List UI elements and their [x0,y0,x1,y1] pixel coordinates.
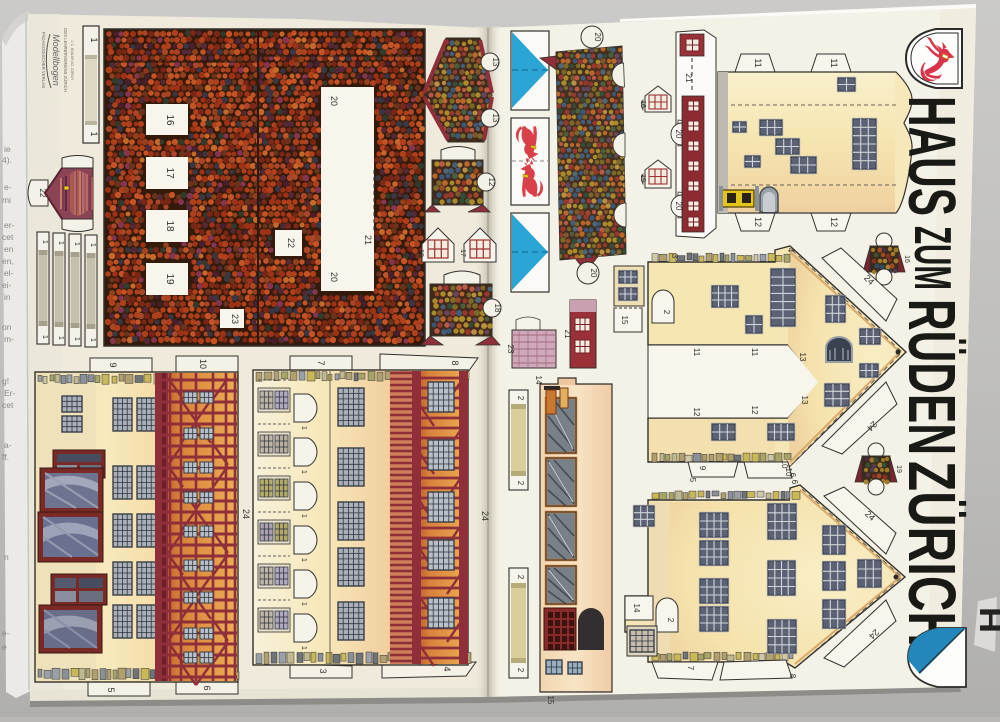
svg-text:mi: mi [2,195,11,205]
svg-text:1: 1 [41,240,48,244]
svg-text:18: 18 [493,304,502,313]
svg-text:20: 20 [329,272,339,282]
svg-text:5: 5 [688,478,697,483]
svg-text:2: 2 [516,668,525,673]
svg-text:1: 1 [57,241,64,245]
svg-text:1: 1 [300,426,307,430]
svg-text:17: 17 [164,167,175,179]
svg-text:J. C. MÜLLER AG. ZÜRICH: J. C. MÜLLER AG. ZÜRICH [70,40,74,80]
svg-text:20: 20 [593,33,602,42]
svg-text:ZUM: ZUM [903,226,961,290]
svg-text:PÄDAGOGISCHER VERLAG: PÄDAGOGISCHER VERLAG [41,32,46,89]
svg-text:22: 22 [286,238,296,248]
svg-text:1: 1 [300,602,307,606]
svg-text:13: 13 [800,396,809,405]
svg-text:1: 1 [300,558,307,562]
svg-text:14: 14 [534,376,543,385]
svg-text:8: 8 [788,674,797,679]
svg-text:cet: cet [2,232,14,242]
svg-text:1: 1 [73,337,80,341]
svg-text:10: 10 [198,359,208,369]
svg-text:1: 1 [41,335,48,339]
svg-text:1: 1 [89,338,96,342]
svg-text:ei-: ei- [2,280,12,290]
svg-text:el-: el- [4,268,14,278]
svg-text:RÜDEN: RÜDEN [894,299,969,455]
svg-text:20: 20 [674,202,683,211]
svg-text:18: 18 [417,249,424,257]
svg-text:m-: m- [4,334,14,344]
svg-text:3: 3 [670,254,679,259]
svg-text:15: 15 [546,696,555,705]
svg-text:2: 2 [516,575,525,580]
svg-text:19: 19 [639,174,646,182]
svg-text:1: 1 [300,514,307,518]
svg-text:13: 13 [491,58,500,67]
svg-text:7: 7 [316,360,326,365]
svg-text:en: en [4,244,14,254]
svg-text:20: 20 [329,96,339,106]
svg-text:16: 16 [164,114,175,126]
svg-text:11: 11 [753,58,763,67]
svg-text:ie: ie [4,144,11,154]
svg-text:21: 21 [563,330,572,339]
svg-text:cet: cet [2,400,14,410]
svg-text:15: 15 [620,316,629,325]
svg-text:20: 20 [674,130,683,139]
svg-text:e-: e- [2,628,10,638]
svg-text:6: 6 [202,685,212,690]
svg-text:18: 18 [164,220,175,232]
svg-text:5: 5 [106,687,116,692]
svg-text:24: 24 [480,511,490,521]
svg-text:13: 13 [798,353,807,362]
svg-text:HAUS: HAUS [894,96,969,216]
svg-text:n: n [4,552,9,562]
svg-text:a-: a- [4,440,12,450]
svg-text:23: 23 [506,345,515,354]
svg-text:9: 9 [698,466,707,471]
svg-text:Modellbogen: Modellbogen [51,34,61,86]
svg-text:ff.: ff. [2,452,9,462]
svg-text:23: 23 [230,314,240,324]
svg-text:12: 12 [829,217,839,227]
svg-text:1: 1 [89,37,99,42]
svg-text:1: 1 [57,336,64,340]
svg-text:DES LEHRERVEREINS ZÜRICH: DES LEHRERVEREINS ZÜRICH [63,28,68,92]
svg-text:21: 21 [684,74,693,83]
svg-text:Er-: Er- [4,388,16,398]
svg-text:2: 2 [662,310,671,315]
svg-text:er-: er- [4,220,15,230]
svg-text:1: 1 [300,470,307,474]
svg-text:e: e [2,642,7,652]
svg-text:10: 10 [784,468,793,477]
svg-text:1: 1 [89,131,99,136]
svg-text:2: 2 [516,396,525,401]
svg-text:1: 1 [73,242,80,246]
svg-text:2: 2 [516,481,525,486]
svg-text:g!: g! [2,376,9,386]
svg-text:12: 12 [750,406,759,415]
svg-text:14: 14 [632,604,641,613]
svg-text:3: 3 [318,668,328,673]
svg-text:1: 1 [300,646,307,650]
svg-text:H: H [973,607,1000,633]
svg-text:e-: e- [4,182,12,192]
svg-text:7: 7 [686,666,695,671]
svg-text:11: 11 [750,348,759,357]
svg-text:13: 13 [491,114,500,123]
svg-text:1: 1 [89,243,96,247]
svg-text:19: 19 [164,273,175,285]
svg-text:24: 24 [241,509,251,519]
svg-text:9: 9 [108,362,118,367]
svg-text:12: 12 [692,408,701,417]
svg-text:11: 11 [692,348,701,357]
svg-text:2: 2 [666,618,675,623]
svg-text:4: 4 [786,248,795,253]
svg-text:12: 12 [487,178,496,187]
svg-text:on: on [2,322,12,332]
svg-text:4: 4 [442,666,452,671]
svg-text:16: 16 [639,100,646,108]
svg-text:12: 12 [753,217,763,227]
svg-text:11: 11 [829,58,839,67]
svg-text:17: 17 [459,249,466,257]
svg-text:20: 20 [589,269,598,278]
svg-text:8: 8 [450,360,460,365]
svg-text:4).: 4). [2,155,12,165]
svg-text:in: in [4,292,11,302]
svg-text:21: 21 [363,235,373,245]
svg-text:en,: en, [2,256,14,266]
svg-text:6: 6 [790,480,799,485]
svg-text:ZÜRICH: ZÜRICH [894,461,969,647]
